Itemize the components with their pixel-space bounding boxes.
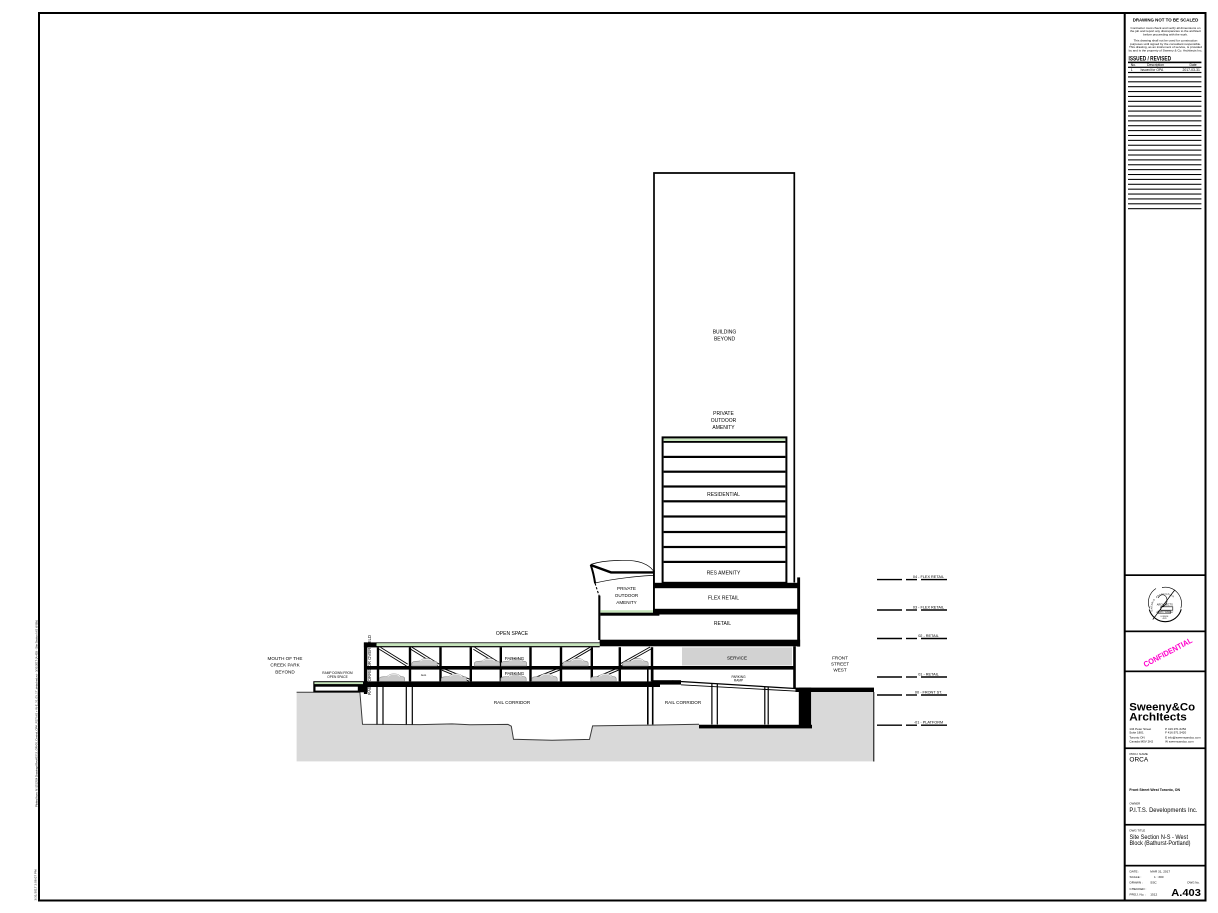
svg-text:Block (Bathurst-Portland): Block (Bathurst-Portland)	[1130, 841, 1191, 847]
svg-text:OPEN SPACE: OPEN SPACE	[327, 675, 348, 679]
svg-text:OWNER: OWNER	[1129, 801, 1140, 805]
svg-text:RAIL CORRIDOR: RAIL CORRIDOR	[665, 700, 702, 705]
svg-text:1: 1	[1131, 68, 1133, 72]
svg-text:BUILDING: BUILDING	[713, 330, 737, 336]
svg-text:CONFIDENTIAL: CONFIDENTIAL	[1142, 636, 1194, 669]
svg-text:02 - RETAIL: 02 - RETAIL	[918, 634, 939, 638]
svg-text:Description: Description	[1147, 63, 1164, 67]
svg-text:-01 - PLATFORM: -01 - PLATFORM	[914, 721, 943, 725]
svg-text:P.I.T.S. Developments Inc.: P.I.T.S. Developments Inc.	[1129, 808, 1197, 814]
svg-text:Auto: Auto	[421, 673, 427, 677]
svg-text:DATE :: DATE :	[1130, 870, 1140, 874]
svg-text:No.: No.	[1131, 63, 1136, 67]
svg-text:RAIL CORRIDOR: RAIL CORRIDOR	[494, 700, 531, 705]
svg-text:Suite 1801: Suite 1801	[1129, 731, 1144, 735]
svg-text:OPEN SPACE: OPEN SPACE	[496, 631, 529, 637]
svg-text:1512: 1512	[1150, 893, 1157, 897]
svg-text:Issued for OPA: Issued for OPA	[1141, 68, 1164, 72]
svg-text:ONTARIO ASSOCIATION: ONTARIO ASSOCIATION	[1150, 593, 1174, 612]
svg-text:BEYOND: BEYOND	[275, 669, 295, 674]
svg-text:FLEX RETAIL: FLEX RETAIL	[708, 595, 739, 601]
svg-text:CREEK PARK: CREEK PARK	[270, 663, 300, 668]
svg-text:OUTDOOR: OUTDOOR	[615, 593, 639, 598]
svg-text:before proceeding with the wor: before proceeding with the work.	[1143, 32, 1188, 36]
svg-text:W sweenyandco.com: W sweenyandco.com	[1165, 739, 1194, 743]
svg-text:A.403: A.403	[1171, 888, 1201, 899]
svg-text:PARKING: PARKING	[505, 656, 525, 661]
svg-text:Date: Date	[1190, 63, 1197, 67]
svg-text:F 416.971.5420: F 416.971.5420	[1165, 731, 1186, 735]
svg-text:BEYOND: BEYOND	[714, 337, 736, 343]
svg-text:PRIVATE: PRIVATE	[617, 586, 636, 591]
svg-text:OUTDOOR: OUTDOOR	[711, 418, 737, 424]
svg-text:MOUTH OF THE: MOUTH OF THE	[268, 656, 303, 661]
svg-text:SERVICE: SERVICE	[727, 655, 747, 660]
svg-text:3/31/2017 2:08:07 PM: 3/31/2017 2:08:07 PM	[34, 869, 38, 901]
svg-text:Site Section N-S - West: Site Section N-S - West	[1130, 835, 1189, 841]
svg-text:RES AMENITY: RES AMENITY	[707, 571, 741, 577]
svg-text:00 - FRONT ST.: 00 - FRONT ST.	[915, 690, 942, 694]
svg-text:DRAWING NOT TO BE SCALED: DRAWING NOT TO BE SCALED	[1133, 18, 1199, 23]
svg-text:1 : 300: 1 : 300	[1154, 875, 1164, 879]
svg-text:AMENITY: AMENITY	[616, 600, 636, 605]
svg-text:RETAIL: RETAIL	[714, 621, 731, 627]
svg-text:04 - FLEX RETAIL: 04 - FLEX RETAIL	[913, 575, 944, 579]
svg-text:DWG No.: DWG No.	[1187, 881, 1200, 885]
svg-text:4976: 4976	[1163, 618, 1167, 620]
svg-text:01 - RETAIL: 01 - RETAIL	[918, 672, 939, 676]
svg-text:PROJ. No. :: PROJ. No. :	[1130, 893, 1147, 897]
svg-text:PROJ. NAME: PROJ. NAME	[1130, 752, 1148, 756]
svg-text:ORCA: ORCA	[1129, 757, 1148, 764]
svg-text:SCALE :: SCALE :	[1130, 875, 1142, 879]
svg-text:ArchItects: ArchItects	[1129, 712, 1187, 724]
svg-text:SSC: SSC	[1150, 880, 1157, 884]
svg-text:CHECKED :: CHECKED :	[1130, 887, 1147, 891]
svg-text:RAMP: RAMP	[734, 678, 743, 682]
svg-text:PRIVATE: PRIVATE	[713, 411, 734, 417]
svg-text:MAR 31, 2017: MAR 31, 2017	[1150, 870, 1170, 874]
svg-text:STREET: STREET	[831, 661, 849, 666]
svg-text:FRONT: FRONT	[832, 655, 848, 660]
svg-text:by and is the property of Swee: by and is the property of Sweeny & Co. A…	[1129, 49, 1203, 53]
svg-text:Front Street West Toronto, ON: Front Street West Toronto, ON	[1129, 788, 1180, 792]
svg-text:03 - FLEX RETAIL: 03 - FLEX RETAIL	[913, 605, 944, 609]
svg-text:DRAWN :: DRAWN :	[1130, 880, 1143, 884]
svg-text:RESIDENTIAL: RESIDENTIAL	[707, 492, 740, 498]
svg-text:PARKING: PARKING	[505, 671, 525, 676]
svg-text:Plotted from: N:\1512\04 Drawi: Plotted from: N:\1512\04 Drawings\Revit\…	[35, 620, 39, 807]
svg-text:AMENITY: AMENITY	[712, 425, 735, 431]
svg-text:DWG TITLE: DWG TITLE	[1130, 829, 1146, 833]
svg-text:Canada M5V 2H2: Canada M5V 2H2	[1129, 739, 1153, 743]
svg-text:2017-03-31: 2017-03-31	[1183, 68, 1200, 72]
svg-text:WEST: WEST	[833, 667, 846, 672]
